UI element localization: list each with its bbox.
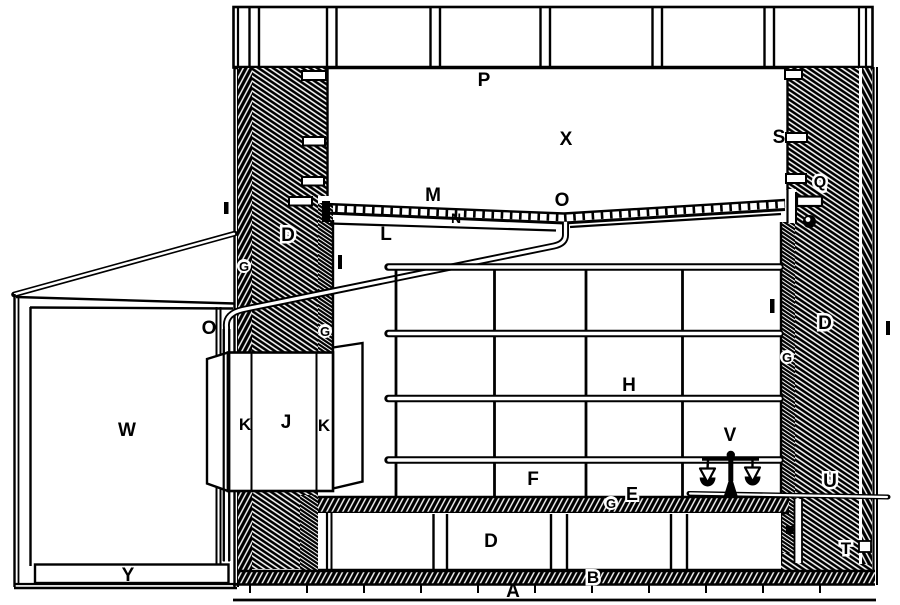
svg-text:G: G xyxy=(606,496,616,511)
svg-text:J: J xyxy=(281,412,292,433)
svg-text:S: S xyxy=(773,127,786,148)
svg-text:V: V xyxy=(724,425,737,446)
svg-text:T: T xyxy=(841,539,852,558)
svg-text:K: K xyxy=(239,415,252,434)
svg-text:G: G xyxy=(239,259,249,274)
svg-text:Y: Y xyxy=(122,565,135,586)
svg-text:M: M xyxy=(425,185,441,206)
svg-text:U: U xyxy=(823,471,837,492)
svg-text:H: H xyxy=(622,375,636,396)
svg-text:O: O xyxy=(555,190,570,211)
svg-text:K: K xyxy=(318,416,331,435)
svg-text:A: A xyxy=(506,581,520,602)
svg-text:Q: Q xyxy=(814,174,826,191)
svg-text:D: D xyxy=(484,531,498,552)
svg-text:G: G xyxy=(782,350,792,365)
svg-text:G: G xyxy=(320,324,330,339)
svg-text:X: X xyxy=(560,129,573,150)
svg-text:W: W xyxy=(118,420,136,441)
svg-text:O: O xyxy=(202,318,217,339)
svg-text:L: L xyxy=(380,224,392,245)
svg-text:P: P xyxy=(478,70,491,91)
svg-text:E: E xyxy=(626,484,638,504)
svg-text:F: F xyxy=(527,469,539,490)
svg-text:D: D xyxy=(281,225,295,246)
svg-text:B: B xyxy=(587,568,599,587)
svg-text:D: D xyxy=(818,313,832,334)
svg-text:N: N xyxy=(451,210,461,226)
